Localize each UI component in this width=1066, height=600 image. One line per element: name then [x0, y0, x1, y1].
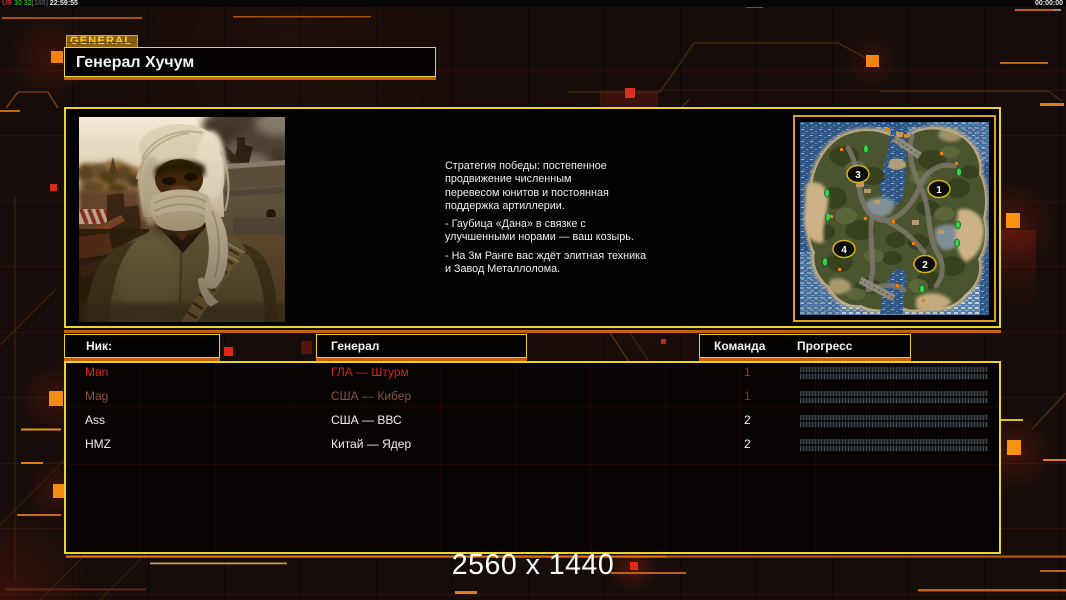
svg-text:4: 4 — [841, 245, 847, 256]
svg-text:1: 1 — [936, 185, 942, 196]
svg-text:2: 2 — [922, 260, 928, 271]
svg-text:3: 3 — [855, 170, 861, 181]
